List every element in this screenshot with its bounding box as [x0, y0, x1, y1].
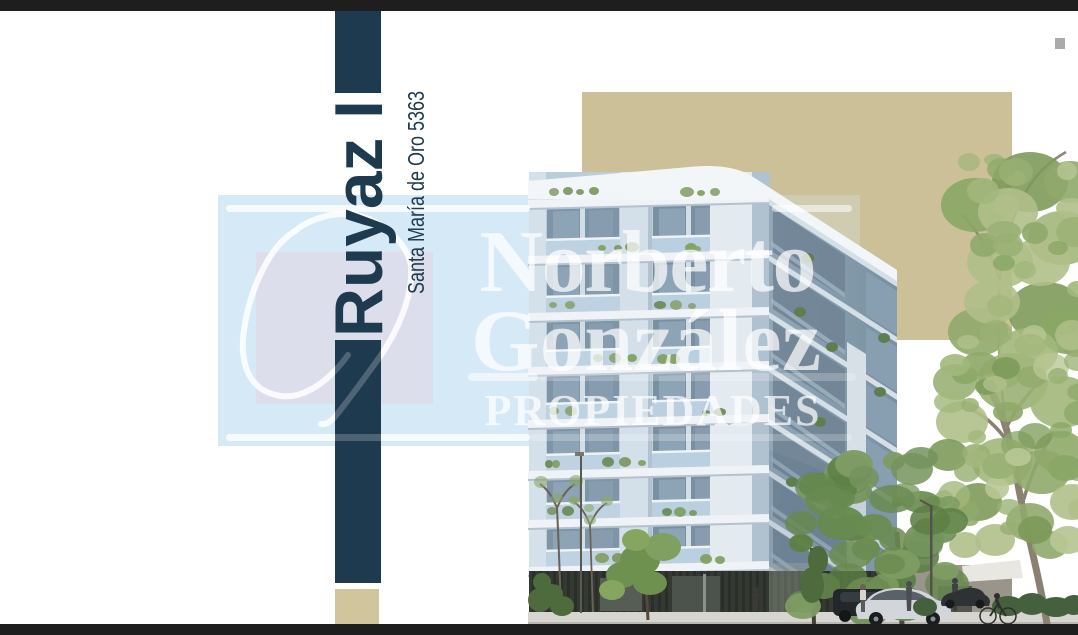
svg-text:Ruyaz I: Ruyaz I — [321, 100, 397, 337]
svg-text:González: González — [471, 293, 821, 390]
svg-text:Santa María de Oro 5363: Santa María de Oro 5363 — [403, 91, 429, 294]
svg-text:PROPIEDADES: PROPIEDADES — [485, 386, 820, 435]
